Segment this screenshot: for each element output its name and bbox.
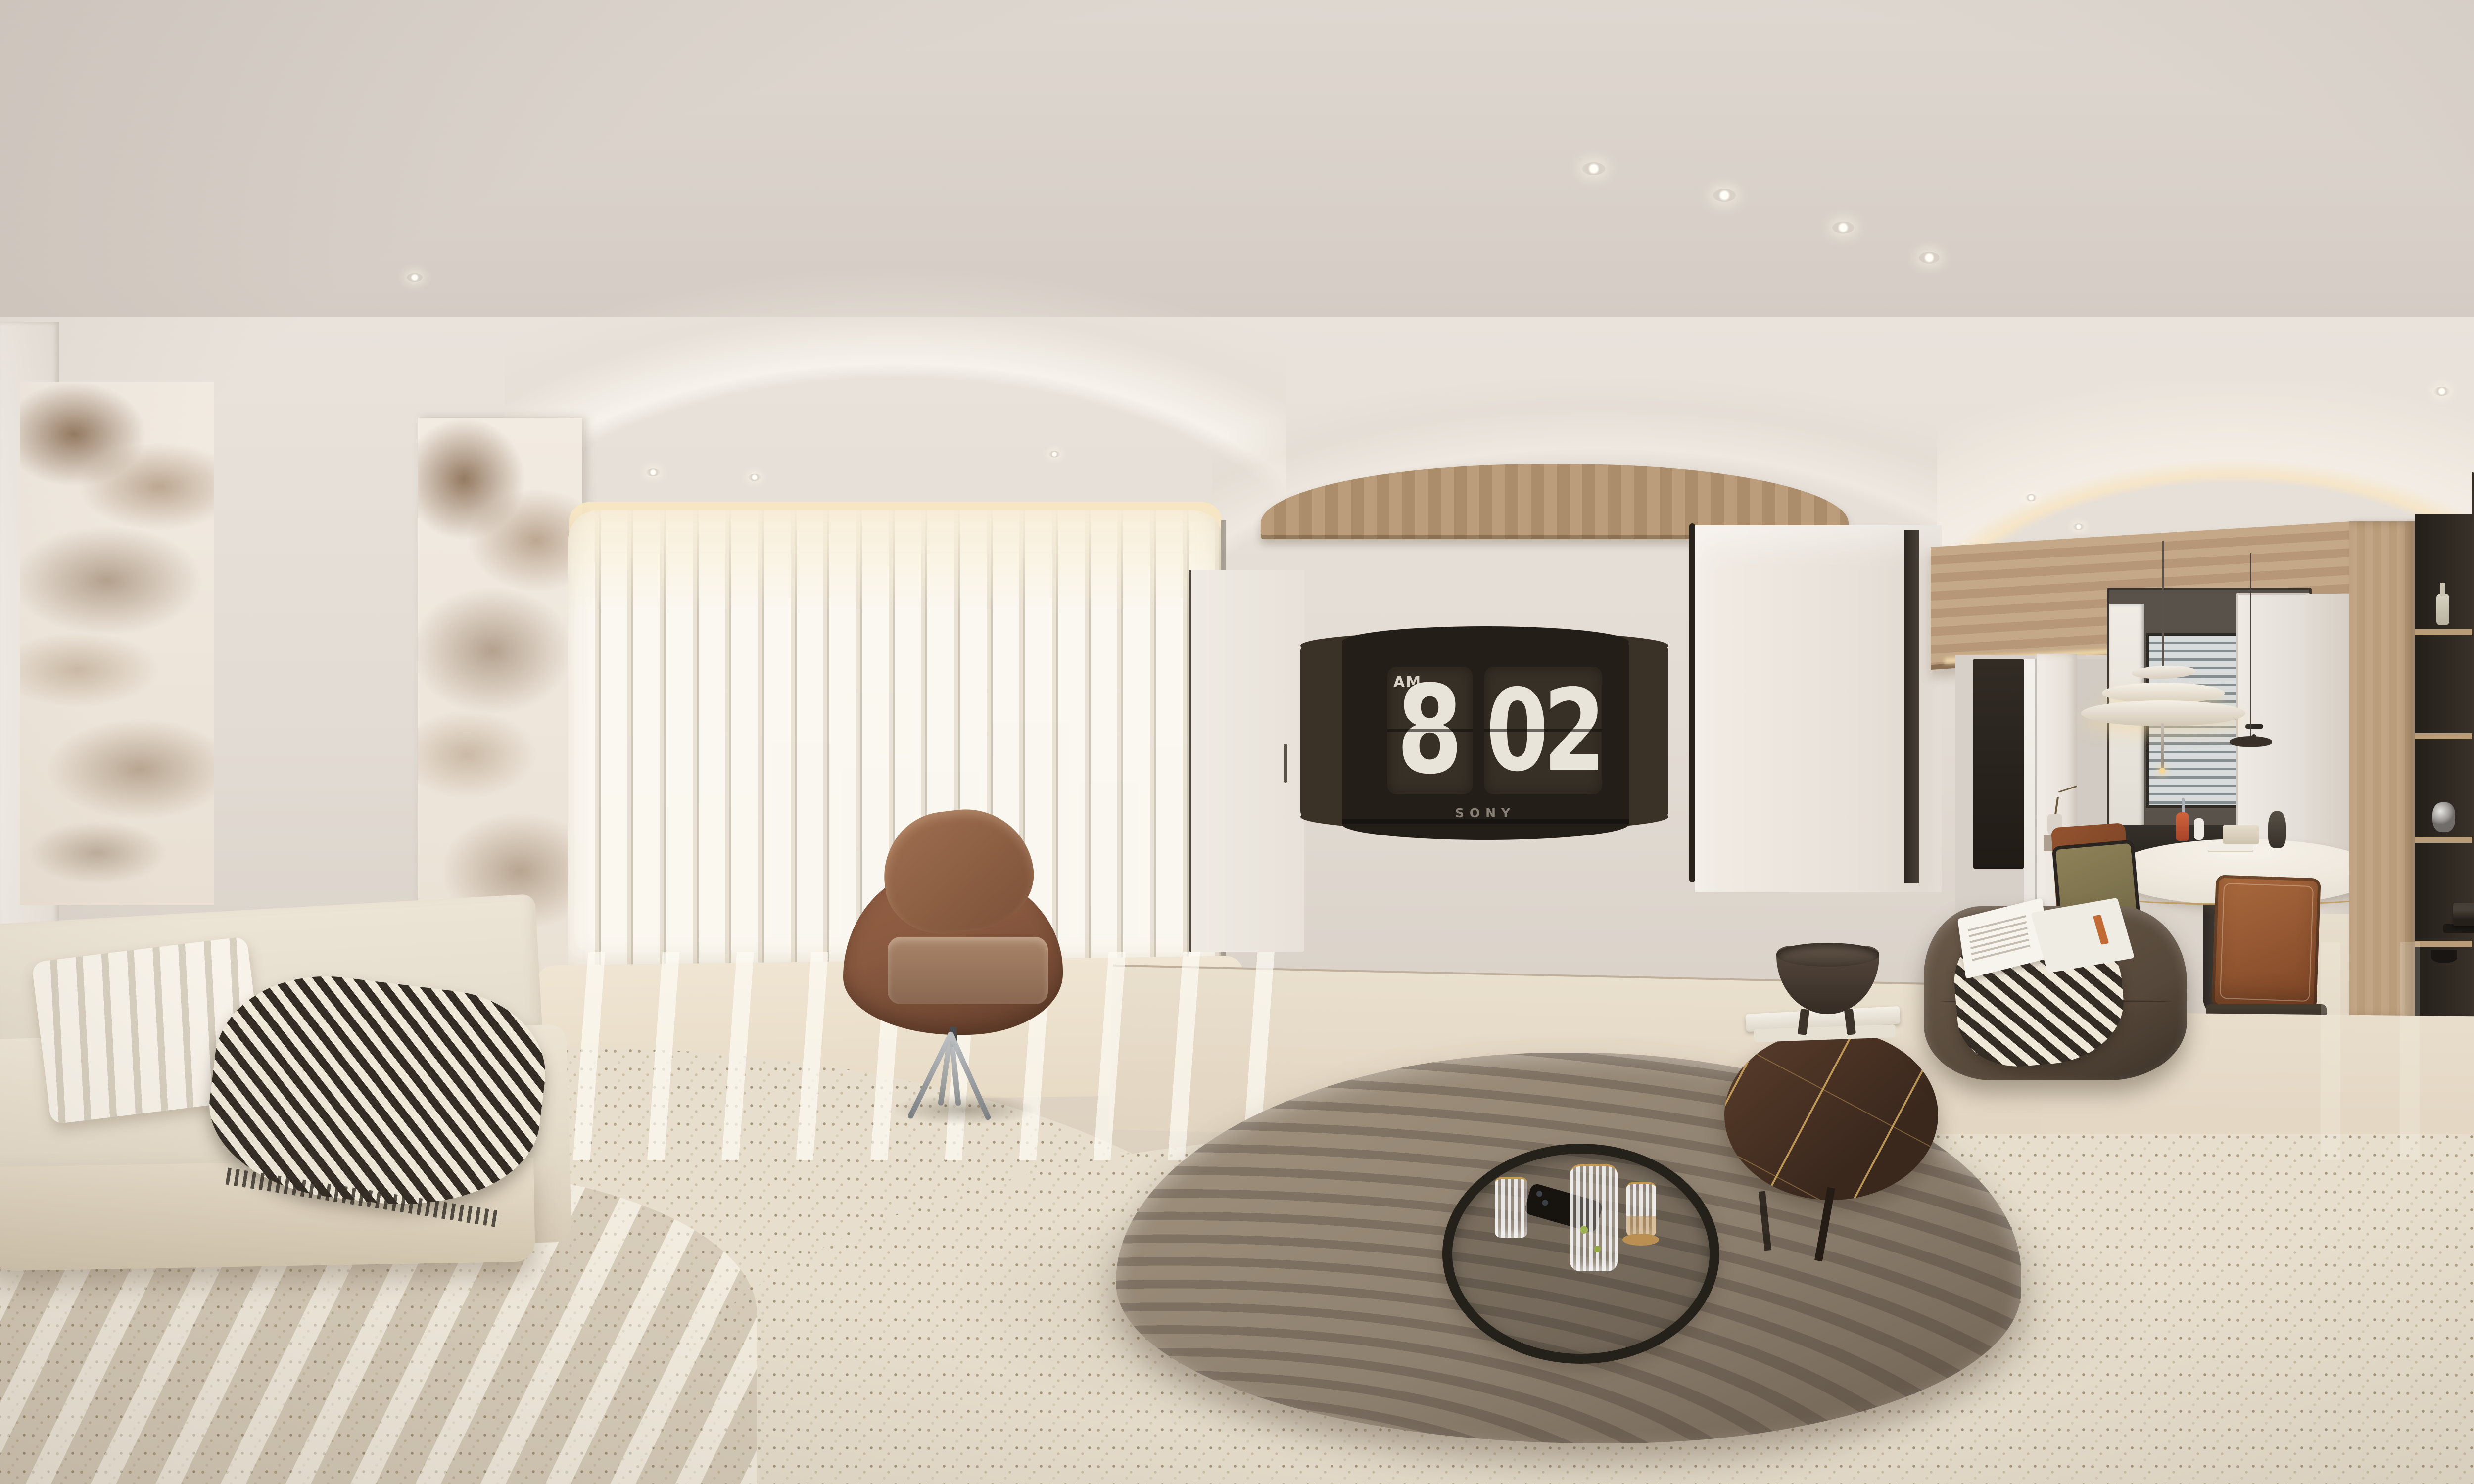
tv-screen-top-curve [1342, 626, 1629, 658]
lime-slice [1580, 1226, 1588, 1234]
recessed-light [646, 468, 660, 476]
door-left [1189, 570, 1304, 952]
bowl-rim [1776, 943, 1879, 967]
magazine-text-lines [1968, 915, 2030, 964]
table-figurine-red [2176, 812, 2189, 841]
wooden-bowl-vase [1776, 946, 1879, 1014]
panorama-scene: AM 8 02 SONY [0, 0, 2474, 1484]
chair-stitch-line [2220, 883, 2314, 1002]
flip-split-line [1387, 729, 1473, 732]
recessed-light [1919, 252, 1939, 263]
recessed-light [2434, 387, 2450, 396]
black-book [2453, 903, 2474, 926]
recessed-light [1049, 451, 1060, 458]
marble-side-table [1724, 1030, 1938, 1200]
hall-dark-doorway [1973, 659, 2024, 869]
flip-clock-minute-card: 02 [1484, 667, 1602, 794]
table-box [2223, 825, 2259, 844]
flip-clock-hour-card: AM 8 [1387, 667, 1473, 794]
recessed-light [2025, 494, 2037, 501]
ribbed-glass [1495, 1177, 1527, 1238]
recessed-light [1582, 162, 1605, 175]
pendant-lamp-stem [2162, 541, 2164, 669]
armchair-seat-cushion [888, 937, 1048, 1004]
flip-split-line [1484, 729, 1602, 732]
water-carafe [1570, 1164, 1618, 1271]
phone-camera [1541, 1199, 1549, 1206]
pendant-shade-big [2081, 700, 2245, 726]
door-handle [1284, 744, 1287, 783]
table-bust-vase [2268, 811, 2286, 848]
wood-coaster [1622, 1234, 1659, 1246]
black-round-tray [1442, 1144, 1719, 1364]
table-figurine-white [2194, 818, 2204, 840]
shelf-bottle-neck [2440, 583, 2445, 596]
corridor-light-streaks [2321, 942, 2474, 1160]
shelf [2415, 733, 2473, 739]
pendant2-stem [2250, 553, 2251, 737]
chair-floor-shadow [860, 1087, 1068, 1132]
lime-slice [1594, 1246, 1601, 1252]
shelf-bottle [2436, 594, 2449, 625]
panel-track-line [1689, 523, 1695, 882]
marble-panel-left [20, 382, 214, 905]
lounge-armchair [840, 810, 1078, 1137]
door-handle [2245, 724, 2263, 729]
recessed-light [748, 474, 761, 481]
shelf [2415, 629, 2473, 635]
phone-camera [1536, 1190, 1543, 1198]
pendant-rod-tip-glow [2159, 768, 2165, 774]
recessed-light [1713, 189, 1736, 202]
pendant2-shade [2230, 736, 2272, 747]
panel-slot-dark [1904, 530, 1919, 883]
table-book [2208, 844, 2253, 851]
shelf-silver-vase [2432, 802, 2455, 832]
recessed-light [407, 273, 423, 282]
pendant-rod [2161, 723, 2164, 769]
tv-brand-logo: SONY [1342, 806, 1629, 820]
tv-screen: AM 8 02 SONY [1342, 641, 1629, 825]
gold-veins [1724, 1030, 1938, 1200]
recessed-light [2073, 524, 2085, 530]
recessed-light [1832, 222, 1854, 234]
ribbed-glass [1626, 1182, 1656, 1237]
magazine-photo [2093, 915, 2109, 945]
shelf [2415, 837, 2473, 843]
